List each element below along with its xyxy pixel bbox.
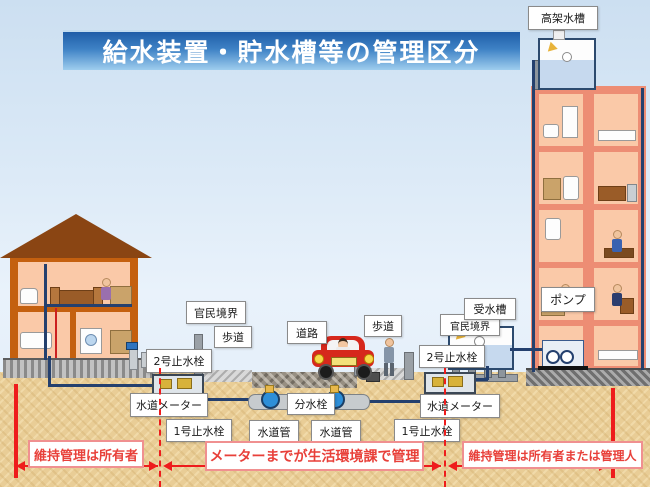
- car-wheel-left: [318, 364, 334, 380]
- car-headlight-left: [314, 354, 324, 364]
- car-headlight-right: [364, 354, 374, 364]
- bld-office-chair: [627, 184, 637, 202]
- bld-room-5R: [594, 326, 638, 366]
- meter-left-body: [177, 378, 192, 389]
- furniture-bathtub: [20, 332, 52, 349]
- label-sidewalk-right: 歩道: [364, 315, 402, 337]
- house-hot-water-pipe: [55, 308, 57, 358]
- car-wheel-right: [356, 364, 372, 380]
- bld-counter-5R: [598, 350, 638, 360]
- house-riser-pipe: [44, 264, 47, 360]
- outdoor-tap-faucet: [126, 342, 138, 350]
- main-pipe-c: [368, 400, 426, 403]
- label-pump: ポンプ: [541, 287, 595, 312]
- boundary-line-left-dashed: [159, 368, 161, 487]
- pump-dial-right: [560, 350, 574, 364]
- bld-counter-1R: [598, 130, 636, 141]
- label-water-meter-right: 水道メーター: [420, 394, 500, 418]
- label-elevated-tank: 高架水槽: [528, 6, 598, 30]
- zone-label-city: メーターまでが生活環境課で管理: [205, 441, 424, 471]
- label-receiving-tank: 受水槽: [464, 298, 516, 320]
- label-stop-valve2-left: 2号止水栓: [146, 349, 212, 373]
- zone-label-owner: 維持管理は所有者: [28, 440, 144, 468]
- zone-label-owner-or-manager: 維持管理は所有者または管理人: [462, 441, 643, 469]
- bld-chair-4R: [620, 298, 634, 314]
- pump-base: [538, 366, 588, 370]
- person-pedestrian: [384, 338, 394, 376]
- label-water-pipe-left: 水道管: [249, 420, 299, 443]
- furniture-toilet: [20, 288, 38, 304]
- zone-arrow-center-head-l: [163, 461, 172, 471]
- bld-desk: [598, 186, 626, 201]
- boundary-line-right-dashed: [444, 368, 446, 487]
- zone-arrow-center-head-r: [432, 461, 441, 471]
- label-water-pipe-right: 水道管: [311, 420, 361, 443]
- building-foundation: [526, 368, 650, 386]
- furniture-dining-table: [58, 290, 94, 305]
- retaining-wall-right: [404, 352, 414, 380]
- car-license-plate: [331, 357, 357, 366]
- elevated-tank-cap: [553, 30, 565, 40]
- house-service-riser: [48, 356, 51, 386]
- label-stop-valve2-right: 2号止水栓: [419, 345, 485, 368]
- person-house-kitchen: [101, 278, 111, 300]
- pipe-tank-inlet: [486, 366, 489, 380]
- zone-arrow-left-head-l: [16, 461, 25, 471]
- elevated-tank-float-ball: [562, 52, 572, 62]
- furniture-chair-left: [50, 287, 60, 305]
- branch-valve-left-nub: [265, 385, 274, 393]
- bld-sink-tall: [562, 106, 578, 138]
- label-sidewalk-left: 歩道: [214, 326, 252, 348]
- person-sitting-3R: [612, 230, 622, 252]
- bld-washer-2L: [563, 176, 579, 200]
- branch-valve-right-nub: [330, 385, 339, 393]
- building-downpipe-right: [641, 88, 644, 370]
- meter-left-fitting: [160, 379, 172, 389]
- water-supply-management-diagram: 給水装置・貯水槽等の管理区分: [0, 0, 650, 487]
- house-service-pipe: [48, 384, 152, 387]
- pipe-tank-outlet: [510, 348, 542, 351]
- bld-cabinet-2L: [543, 178, 561, 200]
- label-water-meter-left: 水道メーター: [130, 393, 208, 417]
- house-roof: [0, 214, 152, 258]
- zone-arrow-left-head-r: [149, 461, 158, 471]
- building-riser-left: [532, 60, 535, 372]
- label-road: 道路: [287, 321, 327, 344]
- washing-machine-door: [85, 334, 97, 346]
- label-boundary-left: 官民境界: [186, 301, 246, 324]
- meter-right-body: [448, 376, 463, 387]
- zone-arrow-right-head-l: [448, 461, 457, 471]
- person-man-4R: [612, 284, 622, 306]
- label-stop-valve1-right: 1号止水栓: [394, 419, 460, 442]
- label-branch-valve: 分水栓: [287, 393, 335, 415]
- house-floor-pipe: [44, 304, 132, 307]
- page-title: 給水装置・貯水槽等の管理区分: [63, 30, 520, 70]
- bld-toilet: [543, 124, 559, 138]
- label-stop-valve1-left: 1号止水栓: [166, 419, 232, 442]
- pump-dial-left: [546, 350, 560, 364]
- meter-right-fitting: [432, 377, 444, 387]
- bld-washer-3L: [545, 218, 561, 240]
